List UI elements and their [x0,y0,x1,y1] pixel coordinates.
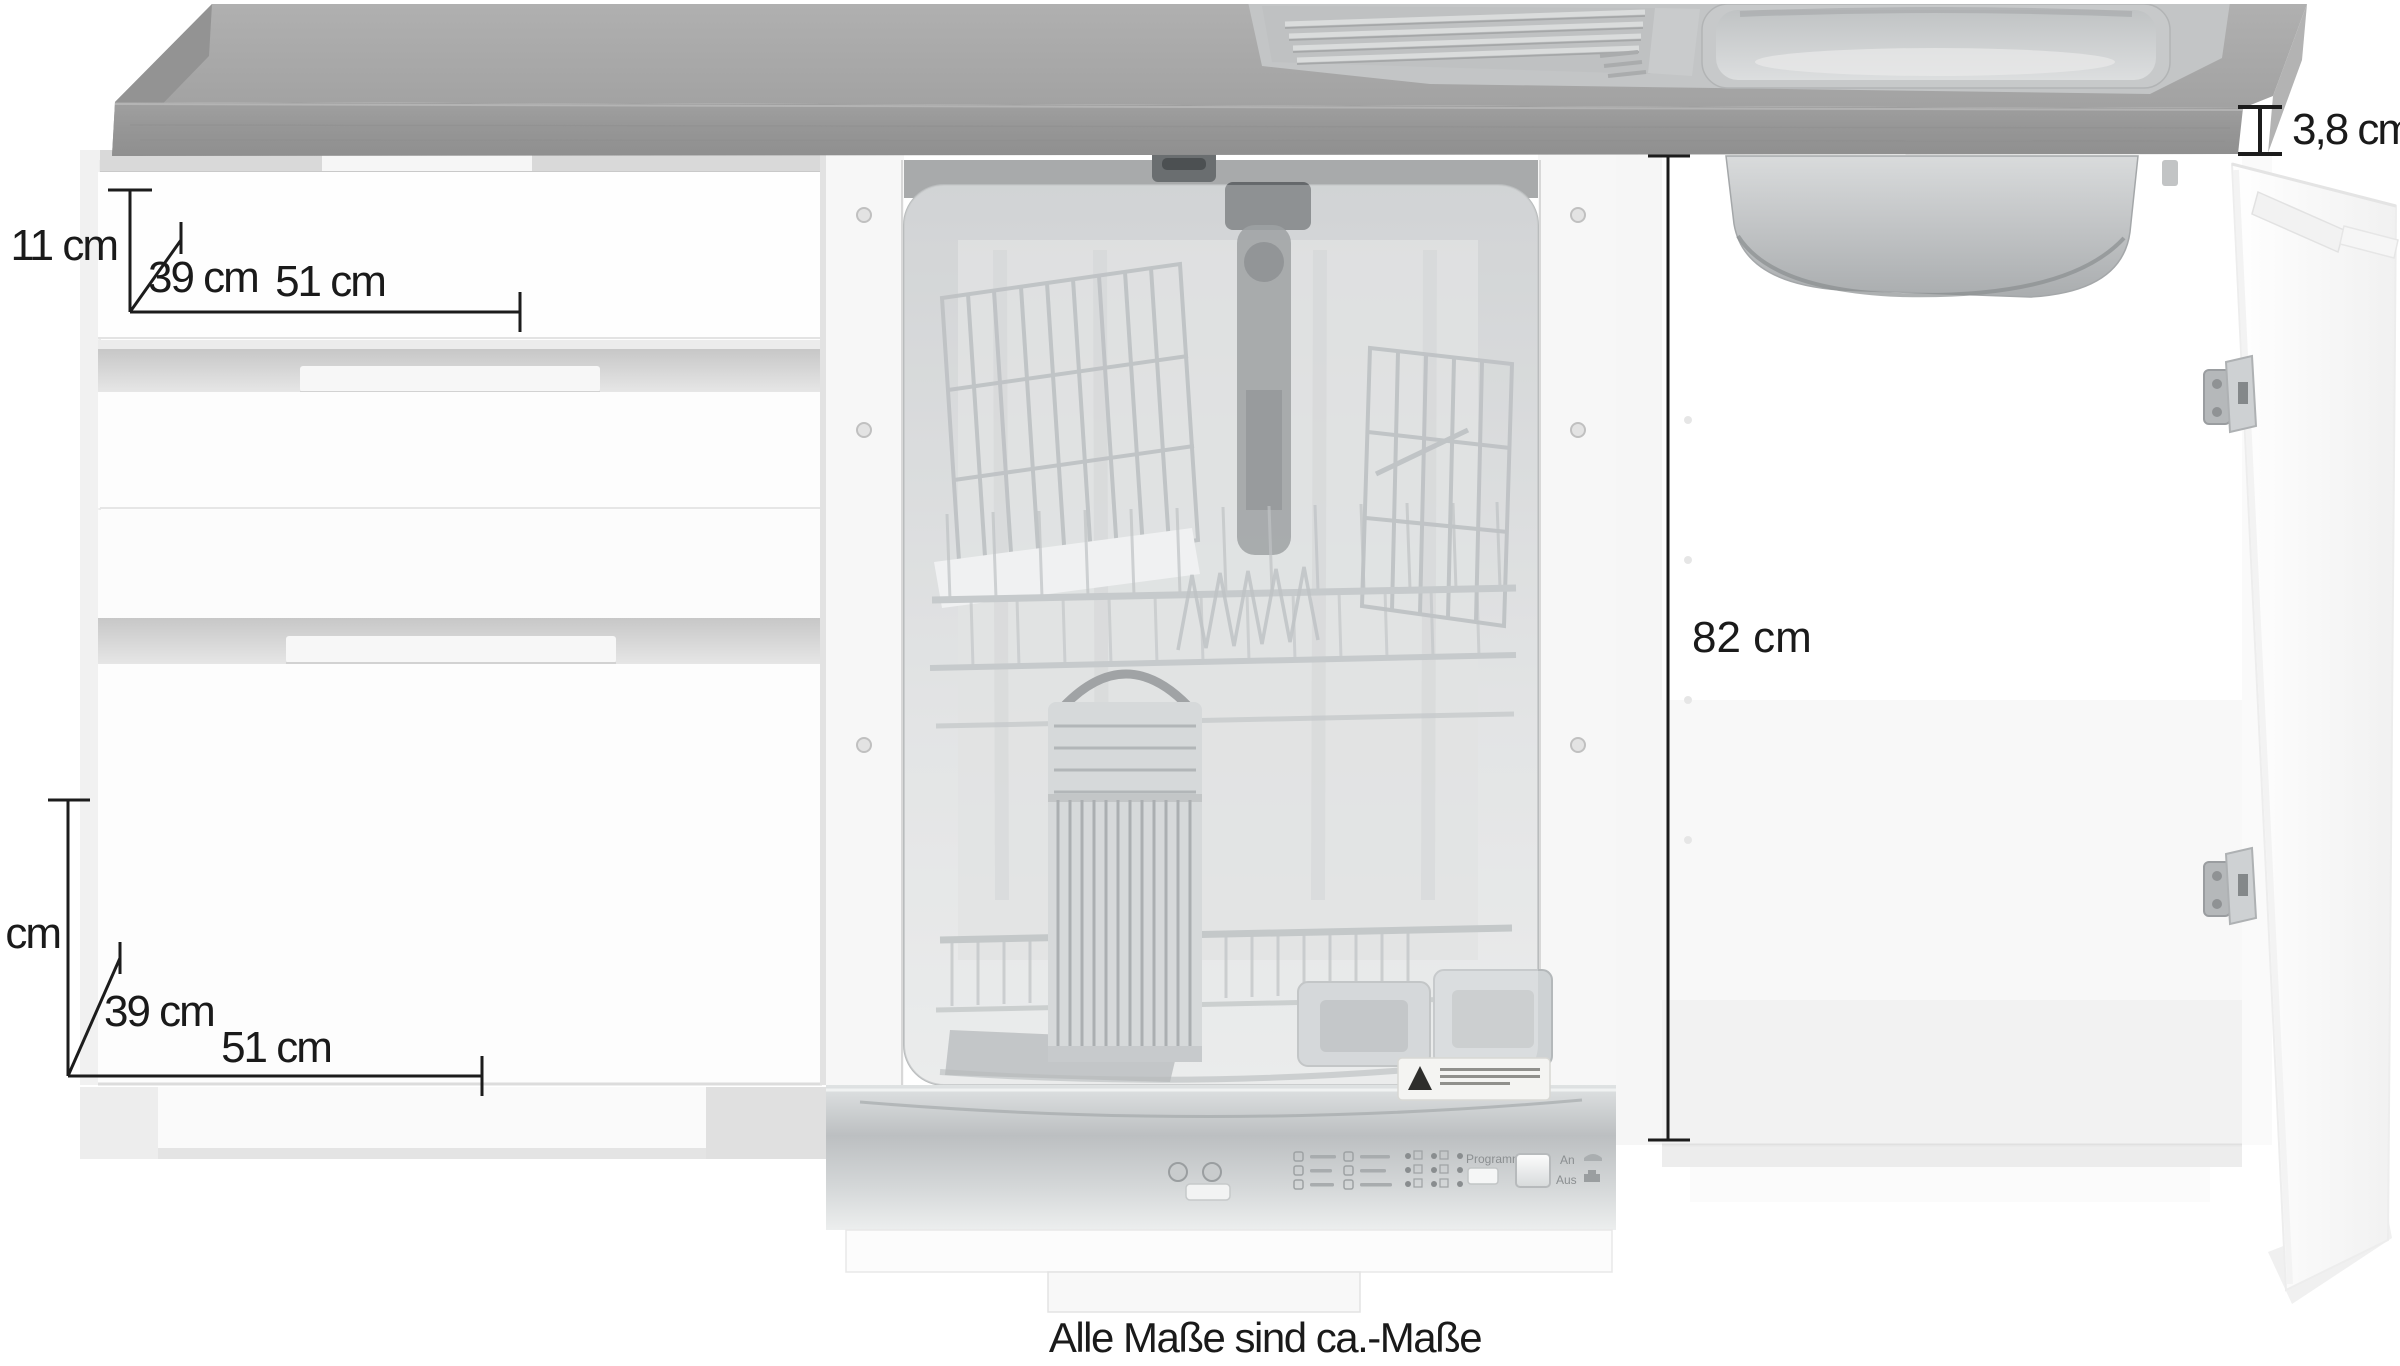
worktop [112,2,2307,156]
drawer-front-3 [98,510,822,618]
caption: Alle Maße sind ca.-Maße [1049,1314,1481,1361]
kitchen-dimension-diagram: Programm An Aus [0,0,2400,1366]
bottom-drawer-depth-label: 39 cm [104,987,214,1036]
worktop-front-face [112,102,2243,156]
cabinet-left-panel [1616,153,1662,1145]
top-drawer-height-label: 11 cm [10,221,117,270]
dishwasher-left-rail [826,150,904,1085]
drawer-front-2 [98,392,822,508]
dishwasher-lower-panel [846,1230,1612,1272]
drawer-grip-3 [286,636,616,663]
on-label: An [1560,1153,1575,1167]
bottom-drawer-width-label: 51 cm [221,1023,331,1072]
program-label: Programm [1466,1152,1522,1166]
drawer-grip-2 [300,366,600,392]
program-button [1468,1168,1498,1184]
diagram-canvas: Programm An Aus [0,0,2400,1366]
sink-divider [1648,8,1700,76]
top-drawer-width-label: 51 cm [275,257,385,306]
power-button [1516,1154,1550,1187]
dishwasher-kick-plate [1048,1272,1360,1312]
left-cabinet-toe-kick [80,1087,828,1159]
interior-height-label: 82 cm [1692,613,1812,662]
worktop-thickness-label: 3,8 cm [2292,105,2400,154]
bottom-drawer-height-label: 22 cm [0,909,60,958]
dishwasher-right-rail [1538,150,1618,1085]
drawer-grip-1 [322,153,532,173]
sink-bowl-top [1702,4,2170,88]
sink-top [1248,2,2230,94]
top-drawer-depth-label: 39 cm [148,253,258,302]
dishwasher: Programm An Aus [826,148,1618,1312]
sink-clamp [2162,160,2178,186]
warning-label [1398,1058,1550,1100]
right-sink-cabinet [1616,153,2398,1304]
off-label: Aus [1556,1173,1577,1187]
